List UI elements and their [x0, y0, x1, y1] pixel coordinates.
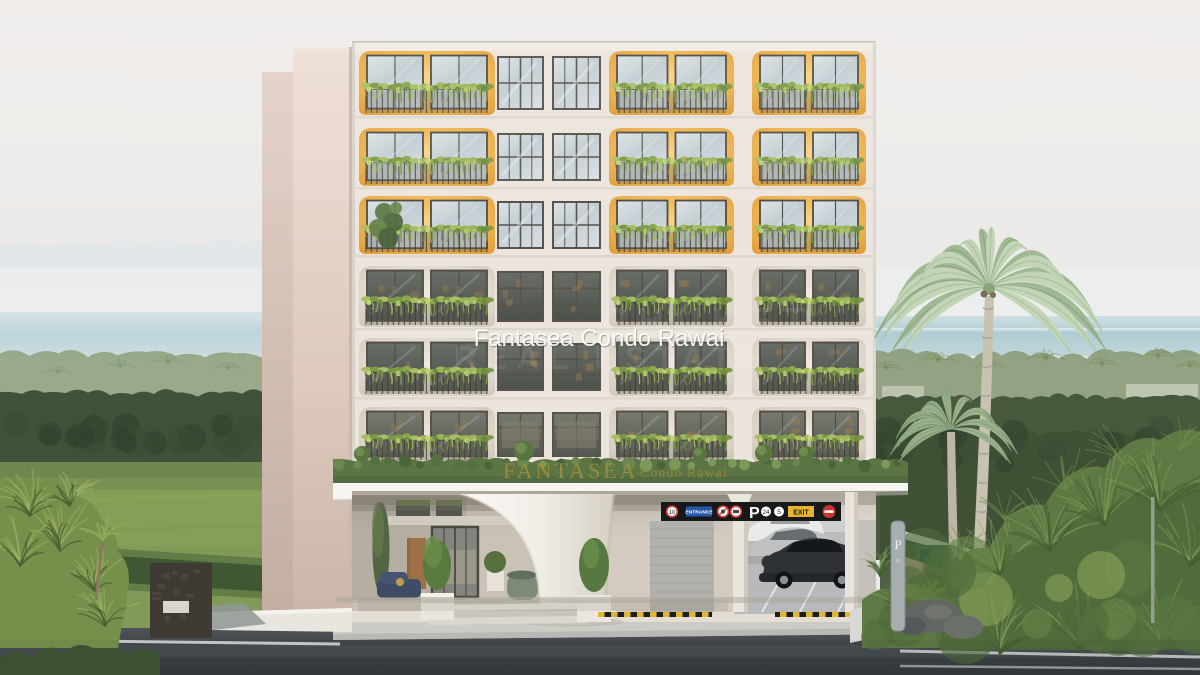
svg-text:Condo Rawai: Condo Rawai	[640, 466, 728, 481]
svg-text:FANTASEA: FANTASEA	[503, 458, 639, 483]
svg-text:P: P	[749, 505, 760, 522]
svg-text:EXIT: EXIT	[793, 510, 809, 517]
svg-text:P: P	[894, 537, 901, 552]
svg-text:ENTRANCE: ENTRANCE	[685, 510, 713, 516]
svg-text:Fantasea Condo Rawai: Fantasea Condo Rawai	[474, 325, 725, 352]
svg-text:5: 5	[777, 509, 781, 516]
svg-text:<: <	[896, 556, 901, 565]
svg-text:24: 24	[763, 510, 770, 516]
svg-text:10: 10	[669, 510, 675, 516]
